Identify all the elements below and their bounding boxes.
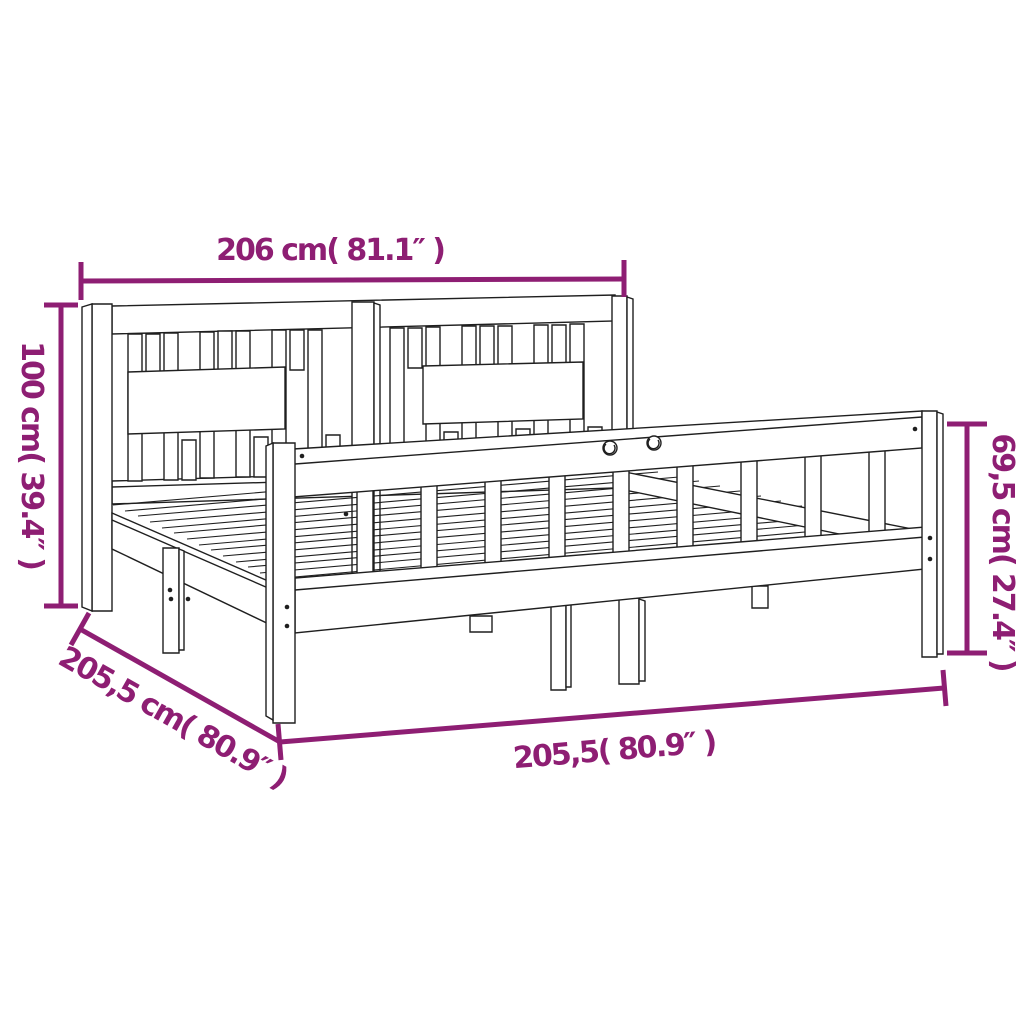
front-left-post [273, 443, 295, 723]
frame-length-label: 205,5( 80.9″ ) [512, 725, 717, 777]
headboard-middle-band-right [423, 362, 583, 424]
bed-dimension-diagram-svg: 206 cm( 81.1″ ) 100 cm( 39.4″ ) 69,5 cm(… [0, 0, 1024, 1024]
dimension-rail-height [947, 424, 987, 653]
left-side-rail [112, 513, 275, 627]
headboard-height-label: 100 cm( 39.4″ ) [14, 341, 49, 569]
support-bracket [470, 616, 492, 632]
lower-rail [295, 527, 925, 633]
frame-depth-label: 205,5 cm( 80.9″ ) [53, 639, 293, 796]
center-back-leg [551, 598, 566, 690]
diagram-canvas: 206 cm( 81.1″ ) 100 cm( 39.4″ ) 69,5 cm(… [0, 0, 1024, 1024]
bed-frame-drawing [82, 295, 943, 723]
rail-height-label: 69,5 cm( 27.4″ ) [985, 433, 1020, 671]
front-right-post [922, 411, 937, 657]
center-front-leg [619, 598, 639, 684]
headboard-middle-band-left [128, 367, 285, 434]
headboard-left-post [92, 304, 112, 611]
top-width-label: 206 cm( 81.1″ ) [216, 233, 444, 268]
support-bracket [752, 586, 768, 608]
